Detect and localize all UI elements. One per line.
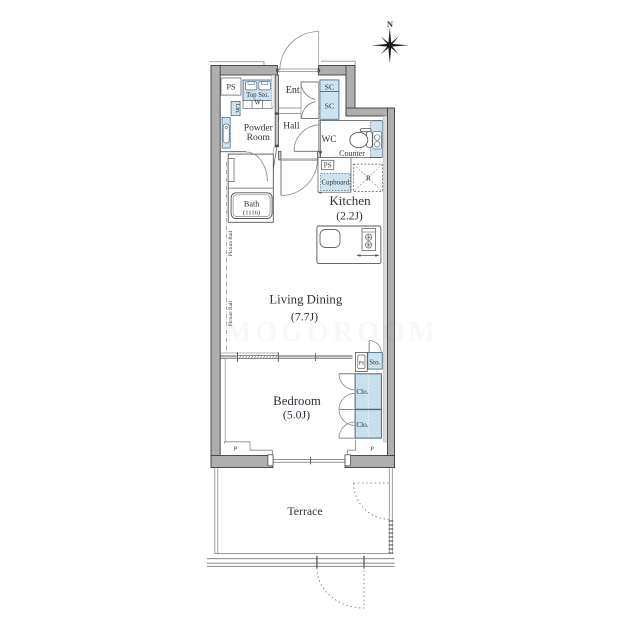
svg-text:Living Dining: Living Dining bbox=[269, 293, 342, 307]
svg-text:W: W bbox=[254, 100, 261, 107]
svg-text:P: P bbox=[370, 446, 374, 453]
svg-text:(5.0J): (5.0J) bbox=[283, 408, 310, 422]
svg-text:(7.7J): (7.7J) bbox=[291, 310, 318, 324]
svg-text:Picture Rail: Picture Rail bbox=[228, 230, 234, 256]
svg-text:Top Sto.: Top Sto. bbox=[246, 92, 269, 99]
svg-text:PS: PS bbox=[359, 362, 365, 367]
svg-text:R: R bbox=[366, 174, 371, 183]
svg-text:N: N bbox=[387, 19, 394, 29]
svg-text:Clo.: Clo. bbox=[356, 388, 368, 396]
svg-text:Clo.: Clo. bbox=[356, 421, 368, 429]
svg-text:SC: SC bbox=[325, 82, 335, 91]
svg-text:PS: PS bbox=[227, 83, 236, 92]
svg-text:P: P bbox=[234, 446, 238, 453]
svg-text:Ent.: Ent. bbox=[286, 85, 302, 96]
svg-text:(2.2J): (2.2J) bbox=[336, 211, 363, 223]
svg-text:SC: SC bbox=[325, 101, 335, 110]
svg-text:(1116): (1116) bbox=[243, 210, 260, 217]
svg-text:Counter: Counter bbox=[339, 149, 365, 158]
svg-text:Bedroom: Bedroom bbox=[273, 394, 321, 408]
svg-text:MOGOROOM: MOGOROOM bbox=[225, 317, 439, 348]
svg-text:Room: Room bbox=[247, 133, 271, 143]
svg-text:Bath: Bath bbox=[244, 200, 259, 209]
svg-text:Powder: Powder bbox=[244, 124, 274, 134]
svg-text:Terrace: Terrace bbox=[287, 504, 322, 518]
svg-text:Sto.: Sto. bbox=[369, 359, 380, 367]
svg-text:Hall: Hall bbox=[283, 122, 300, 132]
svg-text:Kitchen: Kitchen bbox=[329, 193, 371, 208]
svg-text:WC: WC bbox=[321, 135, 336, 145]
svg-text:Cupboard: Cupboard bbox=[321, 179, 349, 187]
svg-text:Lin.: Lin. bbox=[234, 103, 241, 114]
svg-text:PS: PS bbox=[324, 162, 332, 170]
